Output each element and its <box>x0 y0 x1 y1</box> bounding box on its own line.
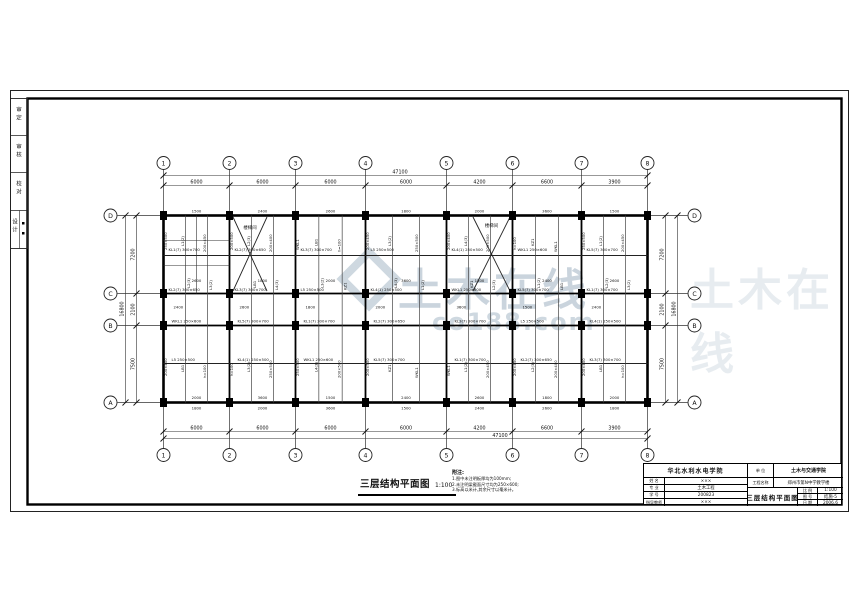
beam-label: L3(2) <box>626 280 631 290</box>
grid-bubble-label: B <box>692 323 696 330</box>
axis-bubbles: 1122334455667788DDCCBBAA <box>104 157 701 462</box>
note-line: 3.标高以米计,其余尺寸以毫米计。 <box>452 487 572 493</box>
beam-label: 2600 <box>240 305 250 310</box>
beam-label: 200×450 <box>620 234 625 252</box>
column-mark <box>292 289 299 298</box>
cad-drawing-page: 土木在线 co188.com 土木在线 审定审核校对设计L1(2)200×450… <box>0 0 858 608</box>
beam-label: L1(2) <box>463 362 468 372</box>
field-value: 200823 <box>665 492 748 499</box>
beam-label: 3600 <box>326 406 336 411</box>
drawing-title-scale: 1:100 <box>435 482 452 489</box>
grid-bubble-label: D <box>108 213 113 220</box>
column-mark <box>443 321 450 330</box>
dimension-text: 4200 <box>473 180 485 186</box>
grid-bubble-label: 4 <box>364 160 368 167</box>
column-mark <box>443 211 450 220</box>
field-label: 专 业 <box>644 485 665 492</box>
beam-label: L3(2) <box>246 362 251 372</box>
beam-label: LB1 <box>559 282 564 290</box>
sheet-title: 三层结构平面图 <box>748 488 798 506</box>
beam-label: 200×400 <box>553 360 558 378</box>
beam-label: 2600 <box>610 278 620 283</box>
beam-label: 3600 <box>542 209 552 214</box>
beam-label: 250×500 <box>581 232 586 250</box>
grid-bubble-label: C <box>692 291 696 298</box>
beam-label: 1500 <box>610 209 620 214</box>
column-mark <box>578 398 585 407</box>
strip-cell-text: 对 <box>16 188 22 196</box>
beam-label: KL5(7) 300×700 <box>518 287 550 292</box>
column-mark <box>509 398 516 407</box>
dimension-text: 6000 <box>190 426 202 432</box>
beam-label: L2(3) <box>530 362 535 372</box>
grid-bubble-label: 6 <box>511 160 515 167</box>
stairwell-label: 楼梯间 <box>243 224 256 231</box>
column-mark <box>362 211 369 220</box>
beam-label: 2000 <box>610 395 620 400</box>
strip-cell-text: 设 <box>12 218 18 226</box>
beam-label: KL5(7) 300×700 <box>587 247 619 252</box>
drawing-title-text: 三层结构平面图 <box>360 479 430 490</box>
grid-bubble-label: D <box>692 213 697 220</box>
beam-label: L1(2) <box>598 236 603 246</box>
strip-cell-text: 审 <box>16 143 22 151</box>
grid-bubble-label: 5 <box>445 452 449 459</box>
column-mark <box>160 321 167 330</box>
grid-bubble-label: 1 <box>162 160 166 167</box>
beam-label: 3600 <box>457 305 467 310</box>
grid-bubble-label: 1 <box>162 452 166 459</box>
beam-label: KL2(7) 300×650 <box>374 319 406 324</box>
grid-bubble-label: 2 <box>228 452 232 459</box>
beam-label: WKL1 <box>414 367 419 378</box>
dimension-text: 47100 <box>392 170 407 176</box>
stairwell-label: 楼梯间 <box>485 222 498 229</box>
column-mark <box>160 398 167 407</box>
dimension-text: 3900 <box>608 180 620 186</box>
grid-bubble-label: 5 <box>445 160 449 167</box>
beam-label: KL4(1) 250×500 <box>238 357 270 362</box>
dimension-text: 6000 <box>400 426 412 432</box>
beam-label: 2000 <box>326 278 336 283</box>
beam-label: KZ1 <box>343 282 348 290</box>
dimension-text: 7200 <box>660 248 666 260</box>
beam-label: 200×450 <box>202 234 207 252</box>
beam-label: 1800 <box>610 406 620 411</box>
beam-label: 2400 <box>475 406 485 411</box>
grid-bubble-label: 8 <box>646 452 650 459</box>
grid-bubble-label: 8 <box>646 160 650 167</box>
beam-label: h=100 <box>202 365 207 378</box>
beam-label: 2400 <box>174 305 184 310</box>
column-mark <box>292 211 299 220</box>
beam-label: 2400 <box>542 278 552 283</box>
beam-label: LB1 <box>598 364 603 372</box>
dimension-text: 6000 <box>190 180 202 186</box>
dimension-text: 6000 <box>324 180 336 186</box>
beam-label: KL1(7) 300×700 <box>455 357 487 362</box>
column-mark <box>509 321 516 330</box>
beam-label: 200×400 <box>268 234 273 252</box>
meta-value: 2006.6 <box>818 500 843 506</box>
beam-label: 2600 <box>475 395 485 400</box>
beam-label: L5 250×500 <box>371 247 395 252</box>
beam-label: 200×450 <box>365 232 370 250</box>
beam-label: h=100 <box>620 365 625 378</box>
column-mark <box>226 398 233 407</box>
beam-label: L4(3) <box>274 280 279 290</box>
beam-label: KL3(7) 300×700 <box>235 287 267 292</box>
beam-label: 250×500 <box>414 234 419 252</box>
beam-label: L5 250×500 <box>301 287 325 292</box>
beam-label: h=100 <box>337 239 342 252</box>
beam-label: 1800 <box>306 305 316 310</box>
dimension-text: 6000 <box>324 426 336 432</box>
beam-label: 2600 <box>542 406 552 411</box>
drawing-title: 三层结构平面图1:100 <box>358 472 456 496</box>
beam-label: KL1(7) 300×700 <box>169 247 201 252</box>
column-mark <box>226 289 233 298</box>
notes-block: 附注: 1.图中未注明板厚均为100mm; 2.未注明梁截面尺寸均为250×60… <box>452 470 572 493</box>
beam-label: KZ1 <box>387 364 392 372</box>
beam-label: 1800 <box>192 406 202 411</box>
beam-label: 200×450 <box>485 360 490 378</box>
dimension-text: 6000 <box>400 180 412 186</box>
column-mark <box>443 289 450 298</box>
beam-label: 200×400 <box>163 358 168 376</box>
beam-label: KL2(7) 300×650 <box>521 357 553 362</box>
beam-label: 1800 <box>401 209 411 214</box>
dimension-text: 2100 <box>131 303 137 315</box>
column-mark <box>362 289 369 298</box>
field-label: 学 号 <box>644 492 665 499</box>
beam-label: 200×500 <box>337 360 342 378</box>
column-mark <box>509 289 516 298</box>
beam-label: KL5(7) 300×700 <box>374 357 406 362</box>
beam-label: KL5(7) 300×700 <box>238 319 270 324</box>
column-mark <box>292 398 299 407</box>
beam-label: 250×500 <box>268 360 273 378</box>
strip-cell-text: 审 <box>16 106 22 114</box>
beam-label: 250×500 <box>295 358 300 376</box>
field-label: 指导教师 <box>644 499 665 506</box>
field-value: ××× <box>665 499 748 506</box>
meta-label: 日 期 <box>798 500 818 506</box>
dimension-text: 7500 <box>131 358 137 370</box>
beam-label: 1500 <box>523 305 533 310</box>
dimension-text: 47100 <box>492 433 507 439</box>
beam-label: 1500 <box>475 278 485 283</box>
beam-label: L1(2) <box>180 236 185 246</box>
beam-label: 2000 <box>376 305 386 310</box>
strip-cell-text: 校 <box>16 180 22 188</box>
beam-label: KL4(1) 250×500 <box>452 247 484 252</box>
grid-bubble-label: 7 <box>580 452 584 459</box>
unit-value: 土木与交通学院 <box>774 464 843 478</box>
dimension-text: 16800 <box>672 301 678 316</box>
beam-label: 2400 <box>258 209 268 214</box>
beam-label: KL3(7) 300×700 <box>590 357 622 362</box>
column-mark <box>644 211 651 220</box>
beam-label: WKL1 250×600 <box>304 357 334 362</box>
beam-label: 2400 <box>592 305 602 310</box>
column-mark <box>578 289 585 298</box>
beam-label: 3600 <box>401 278 411 283</box>
grid-bubble-label: 4 <box>364 452 368 459</box>
beam-label: WKL1 <box>553 241 558 252</box>
column-mark <box>226 211 233 220</box>
beam-label: 2000 <box>192 395 202 400</box>
beam-label: KL3(7) 300×700 <box>455 319 487 324</box>
grid-bubble-label: 2 <box>228 160 232 167</box>
column-mark <box>362 398 369 407</box>
grid-bubble-label: 3 <box>294 452 298 459</box>
beam-label: 1500 <box>401 406 411 411</box>
beam-labels: L1(2)200×450LB1h=100250×500200×400L2(3)L… <box>163 209 631 411</box>
beam-label: 250×500 <box>163 232 168 250</box>
beam-label: 200×500 <box>365 358 370 376</box>
grid-bubble-label: 3 <box>294 160 298 167</box>
beam-label: 2400 <box>401 395 411 400</box>
dimension-text: 4200 <box>473 426 485 432</box>
dimension-text: 6000 <box>256 180 268 186</box>
dimension-text: 7500 <box>660 358 666 370</box>
beam-label: KL4(1) 250×500 <box>590 319 622 324</box>
beam-label: 200×500 <box>229 232 234 250</box>
beam-label: KL2(7) 300×650 <box>235 247 267 252</box>
column-mark <box>644 398 651 407</box>
dimension-text: 6600 <box>541 180 553 186</box>
beam-label: 2000 <box>475 209 485 214</box>
project-value: 郑州市第N中学教学楼 <box>774 478 843 488</box>
dimension-text: 3900 <box>608 426 620 432</box>
structural-plan-canvas: 审定审核校对设计L1(2)200×450LB1h=100250×500200×4… <box>0 0 858 608</box>
beam-label: KL2(7) 300×650 <box>169 287 201 292</box>
beam-label: 2600 <box>326 209 336 214</box>
column-mark <box>226 321 233 330</box>
beam-label: L3(2) <box>208 280 213 290</box>
beam-label: 1500 <box>326 395 336 400</box>
grid-bubble-label: 6 <box>511 452 515 459</box>
beam-label: 2600 <box>192 278 202 283</box>
beam-label: 200×400 <box>581 358 586 376</box>
dimension-text: 2100 <box>660 303 666 315</box>
title-block: 华北水利水电学院 姓 名 ××× 专 业 土木工程 学 号 200823 指导教… <box>643 463 842 505</box>
beam-label: LB1 <box>313 238 318 246</box>
beam-label: L1(2) <box>420 280 425 290</box>
beam-label: KL1(7) 300×700 <box>304 319 336 324</box>
beam-label: L3(2) <box>387 236 392 246</box>
strip-cell-text: 定 <box>16 114 22 122</box>
dimension-text: 6000 <box>256 426 268 432</box>
field-value: ××× <box>665 478 748 485</box>
column-mark <box>644 321 651 330</box>
beam-label: WKL1 <box>295 239 300 250</box>
beam-label: 200×400 <box>446 232 451 250</box>
column-mark <box>160 289 167 298</box>
column-mark <box>292 321 299 330</box>
column-mark <box>362 321 369 330</box>
beam-label: L5 250×500 <box>172 357 196 362</box>
beam-label: L2(3) <box>491 280 496 290</box>
project-label: 工程名称 <box>748 478 774 488</box>
field-label: 姓 名 <box>644 478 665 485</box>
beam-label: LB1 <box>180 364 185 372</box>
column-mark <box>443 398 450 407</box>
beam-label: L5 250×500 <box>521 319 545 324</box>
strip-cell-text: 计 <box>12 226 18 234</box>
unit-label: 单 位 <box>748 464 774 478</box>
beam-label: L4(3) <box>313 362 318 372</box>
beam-label: KL4(1) 250×500 <box>371 287 403 292</box>
grid-bubble-label: B <box>108 323 112 330</box>
org-name: 华北水利水电学院 <box>644 464 748 478</box>
strip-cell-text: 核 <box>16 151 22 159</box>
beam-label: 3600 <box>258 395 268 400</box>
beam-label: h=100 <box>229 363 234 376</box>
beam-label: h=100 <box>512 237 517 250</box>
beam-label: 200×450 <box>512 358 517 376</box>
grid-bubble-label: 7 <box>580 160 584 167</box>
beams <box>164 216 648 403</box>
beam-label: KL3(7) 300×700 <box>301 247 333 252</box>
beam-label: L4(3) <box>463 236 468 246</box>
beam-label: 1500 <box>192 209 202 214</box>
beam-label: KZ1 <box>530 238 535 246</box>
grid-bubble-label: C <box>108 291 112 298</box>
beam-label: WKL1 <box>446 365 451 376</box>
column-mark <box>578 211 585 220</box>
column-mark <box>578 321 585 330</box>
dimension-text: 16800 <box>120 301 126 316</box>
beam-label: WKL1 250×600 <box>452 287 482 292</box>
column-mark <box>160 211 167 220</box>
beam-label: L2(3) <box>246 236 251 246</box>
beam-label: WKL1 250×600 <box>172 319 202 324</box>
dimension-text: 6600 <box>541 426 553 432</box>
beam-label: 2000 <box>258 406 268 411</box>
beam-label: KL1(7) 300×700 <box>587 287 619 292</box>
beam-label: 1800 <box>542 395 552 400</box>
beam-label: WKL1 250×600 <box>518 247 548 252</box>
field-value: 土木工程 <box>665 485 748 492</box>
column-mark <box>644 289 651 298</box>
column-mark <box>509 211 516 220</box>
dimension-text: 7200 <box>131 248 137 260</box>
